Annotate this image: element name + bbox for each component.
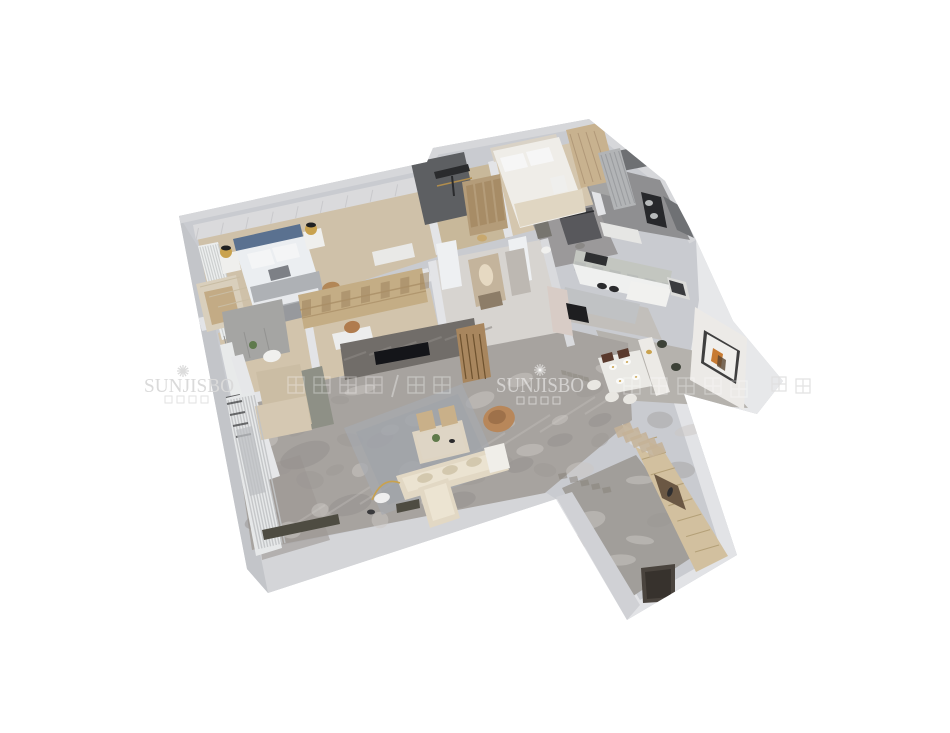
- svg-text:SUNJISBO: SUNJISBO: [144, 375, 234, 397]
- svg-text:SUNJISBO: SUNJISBO: [496, 373, 584, 397]
